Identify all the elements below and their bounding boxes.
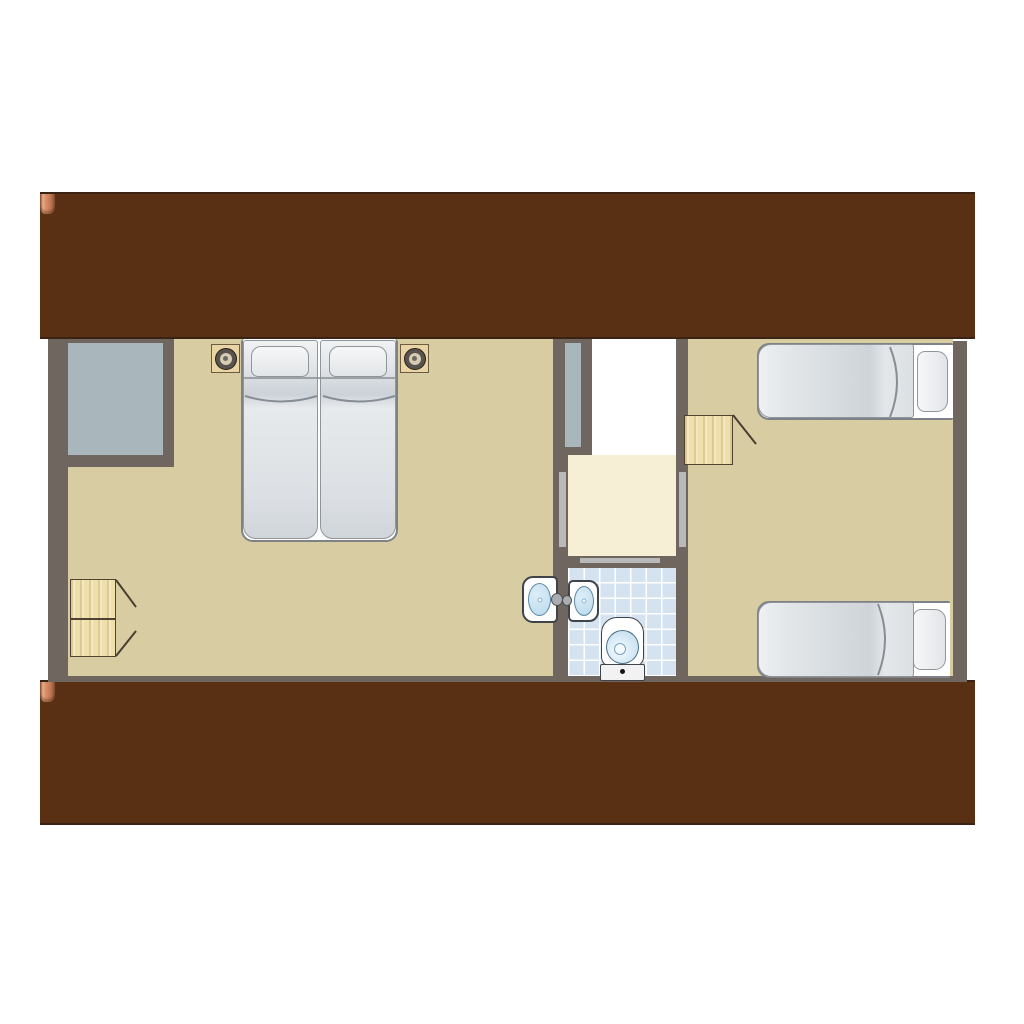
pillow (917, 351, 948, 412)
roof-bottom-tiles (40, 680, 975, 825)
cabinet (684, 415, 733, 465)
floorplan-canvas (0, 0, 1024, 1024)
washbasin-bowl (528, 583, 551, 616)
washbasin-bowl (574, 586, 594, 616)
tap-right (562, 595, 572, 606)
drain-dot (537, 597, 542, 602)
roof-tile-row (40, 194, 975, 214)
toilet-flush-button (620, 669, 625, 674)
nightstand-left (211, 344, 240, 373)
doorway-left-bedroom (559, 472, 566, 547)
doorway-right-bedroom (679, 472, 686, 547)
washbasin-bathroom (568, 580, 599, 622)
single-bed-top-mattress (758, 344, 914, 418)
pillow (329, 346, 387, 377)
lamp-icon (215, 348, 237, 370)
landing (568, 455, 676, 556)
roof-tile-row (40, 682, 975, 702)
wardrobe-divider (70, 618, 116, 620)
bathroom-door (580, 558, 660, 563)
nightstand-right (400, 344, 429, 373)
wall-right (953, 341, 967, 680)
roof-tile (40, 682, 55, 702)
single-bed-bottom-mattress (758, 602, 914, 677)
pillow (251, 346, 309, 377)
roof-top-tiles (40, 192, 975, 339)
roof-tile (40, 194, 55, 214)
toilet-drain (614, 643, 626, 655)
stairwell-void-strip (565, 343, 581, 447)
void-recess (68, 343, 163, 455)
staircase (592, 339, 676, 455)
lamp-icon (404, 348, 426, 370)
pillow (913, 609, 946, 670)
drain-dot (582, 599, 587, 604)
